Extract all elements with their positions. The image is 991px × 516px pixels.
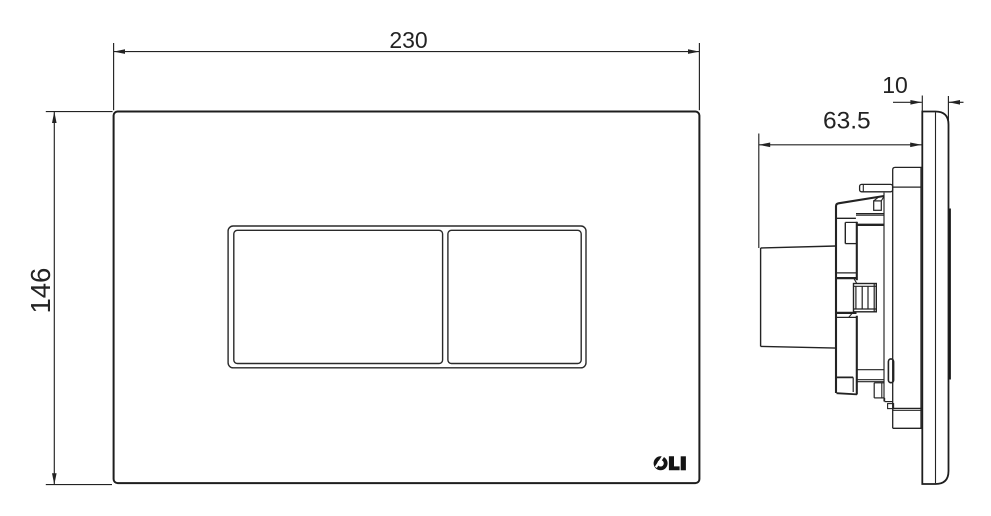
svg-text:146: 146 <box>25 268 56 314</box>
svg-text:230: 230 <box>389 27 427 53</box>
svg-text:63.5: 63.5 <box>823 107 871 134</box>
svg-text:10: 10 <box>882 72 908 98</box>
